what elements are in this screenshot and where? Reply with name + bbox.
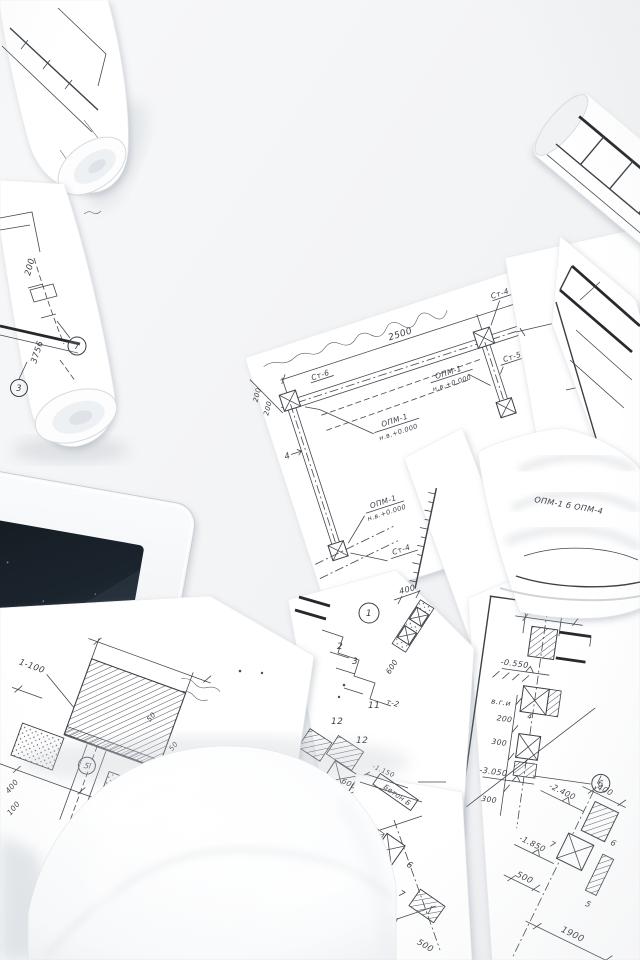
middle-num-2: 2 (337, 642, 343, 652)
axis-bubble-3-label: 3 (16, 384, 22, 394)
axis-bubble-7-label: 7 (74, 342, 80, 352)
hard-hat (20, 736, 410, 960)
middle-num-3: 3 (352, 657, 358, 667)
middle-num-12a: 12 (331, 717, 343, 727)
axis-bubble-1-middle-label: 1 (366, 609, 372, 619)
middle-num-11: 11 (368, 701, 380, 711)
photo-blueprints-scene: 200 3756 7 3 (0, 0, 640, 960)
